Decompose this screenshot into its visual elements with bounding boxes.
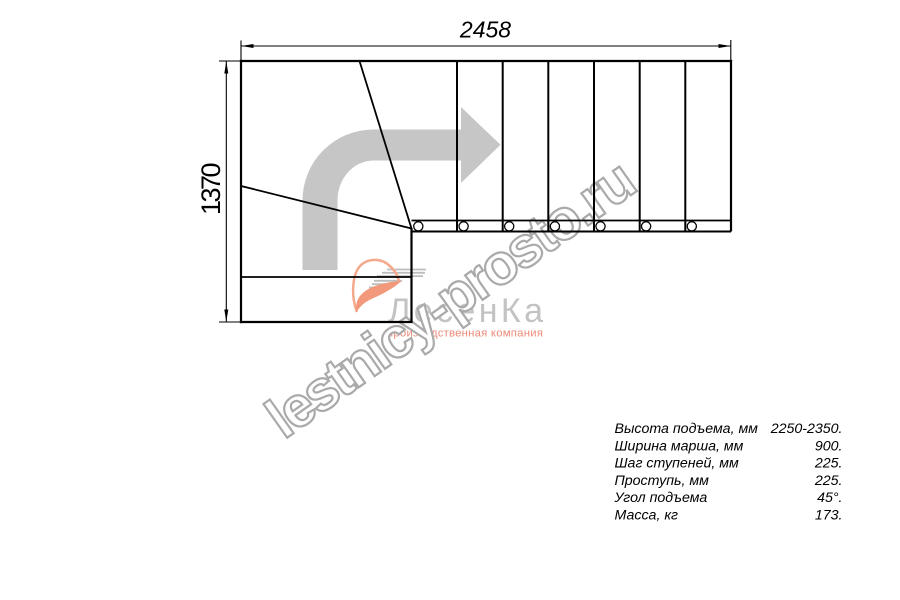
svg-text:Ширина марша, мм: Ширина марша, мм <box>615 438 744 454</box>
svg-text:Масса, кг: Масса, кг <box>615 508 679 524</box>
svg-text:Проступь, мм: Проступь, мм <box>615 473 710 489</box>
svg-text:173.: 173. <box>815 508 843 524</box>
svg-text:Высота подъема, мм: Высота подъема, мм <box>615 421 759 437</box>
svg-text:225.: 225. <box>814 473 843 489</box>
svg-text:Шаг ступеней, мм: Шаг ступеней, мм <box>615 456 739 472</box>
svg-text:Угол подъема: Угол подъема <box>614 490 708 506</box>
svg-text:2250-2350.: 2250-2350. <box>770 421 843 437</box>
svg-text:45°.: 45°. <box>817 490 842 506</box>
svg-text:900.: 900. <box>815 438 843 454</box>
svg-text:2458: 2458 <box>459 17 511 43</box>
svg-text:1370: 1370 <box>196 163 226 215</box>
svg-text:225.: 225. <box>814 456 843 472</box>
